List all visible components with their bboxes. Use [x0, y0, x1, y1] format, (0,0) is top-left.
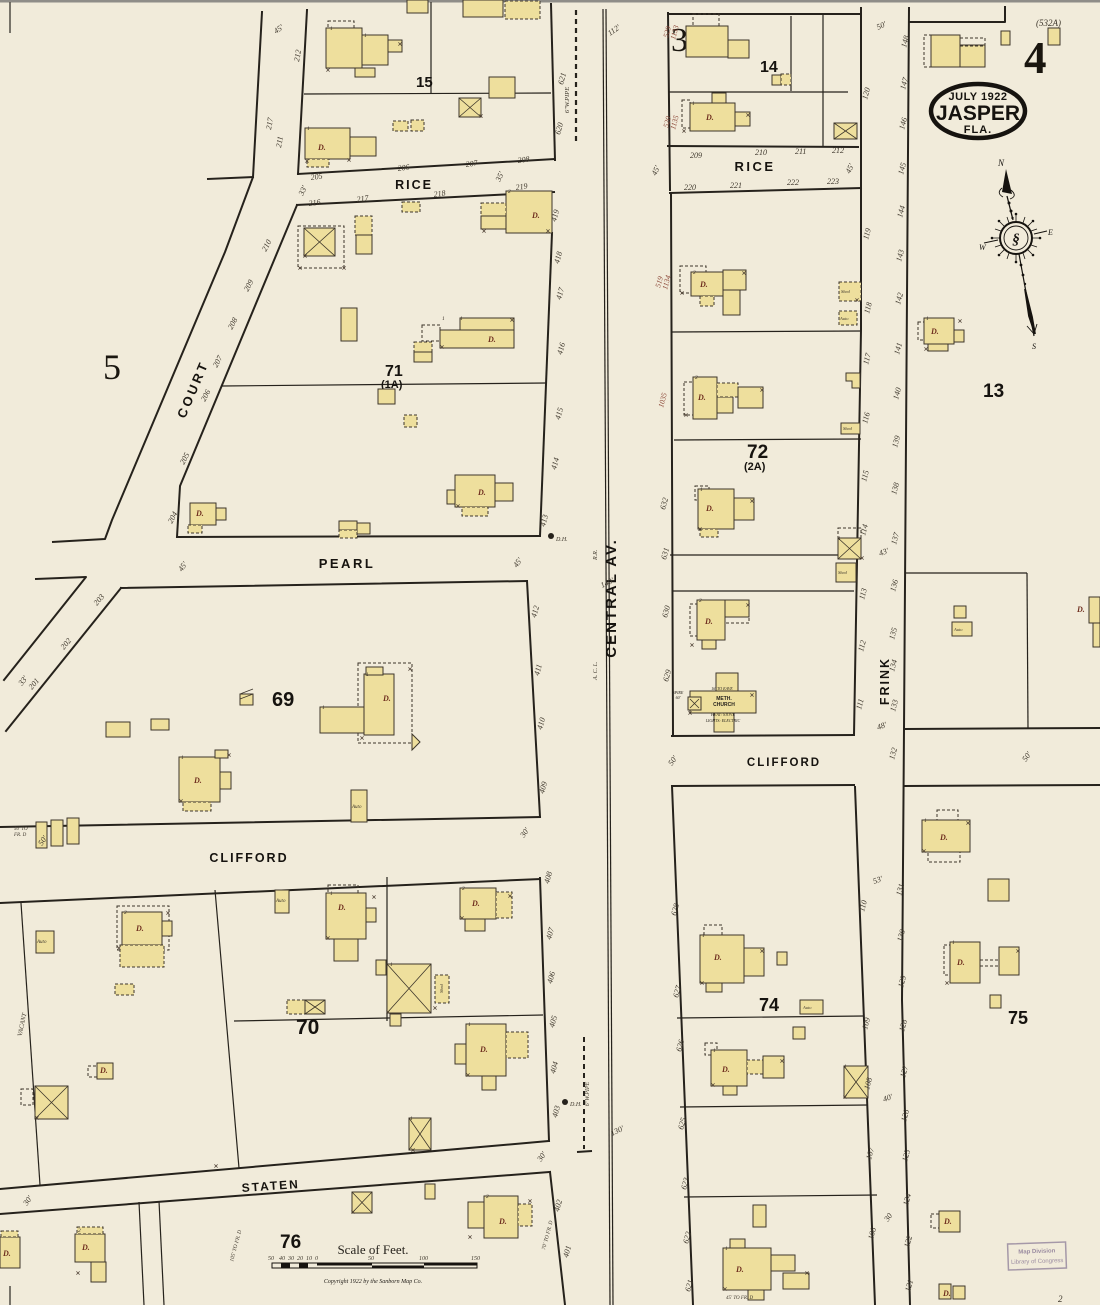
svg-text:1: 1 [410, 1116, 413, 1122]
svg-text:221: 221 [730, 181, 742, 190]
svg-text:75: 75 [1008, 1008, 1028, 1028]
svg-text:1: 1 [322, 705, 325, 711]
svg-text:1: 1 [702, 933, 705, 939]
svg-text:Shed: Shed [843, 426, 852, 431]
svg-text:220: 220 [684, 183, 696, 192]
svg-text:40: 40 [279, 1255, 285, 1262]
svg-text:16' TO EAVE: 16' TO EAVE [711, 686, 733, 691]
svg-text:15: 15 [416, 74, 433, 91]
svg-text:D.: D. [81, 1243, 90, 1252]
svg-text:1: 1 [952, 940, 955, 946]
svg-text:70: 70 [296, 1016, 319, 1039]
svg-text:150: 150 [471, 1256, 480, 1262]
svg-text:10: 10 [306, 1256, 312, 1262]
svg-text:222: 222 [787, 178, 799, 187]
svg-text:218: 218 [433, 188, 446, 199]
svg-text:1: 1 [366, 672, 369, 678]
svg-text:5: 5 [103, 347, 121, 387]
svg-text:D.: D. [943, 1217, 952, 1226]
svg-text:D.H.: D.H. [555, 537, 568, 543]
svg-text:Auto: Auto [351, 805, 362, 810]
svg-text:72: 72 [747, 442, 768, 463]
svg-text:4: 4 [1024, 33, 1047, 83]
svg-text:HEAT: STOVE: HEAT: STOVE [710, 712, 735, 717]
svg-text:50: 50 [368, 1256, 374, 1262]
svg-text:D.: D. [1076, 605, 1085, 614]
svg-text:CLIFFORD: CLIFFORD [747, 757, 821, 769]
svg-text:Auto: Auto [275, 899, 286, 904]
svg-text:S: S [1032, 342, 1036, 351]
svg-text:30: 30 [287, 1256, 294, 1262]
svg-text:207: 207 [465, 158, 479, 169]
svg-text:1: 1 [924, 818, 927, 824]
svg-text:212: 212 [832, 146, 844, 155]
svg-text:D.: D. [479, 1045, 488, 1054]
svg-text:D.: D. [498, 1217, 507, 1226]
svg-text:D.: D. [99, 1066, 108, 1075]
svg-text:FLA.: FLA. [964, 124, 992, 136]
svg-text:D.: D. [477, 488, 486, 497]
svg-text:223: 223 [827, 177, 839, 186]
svg-text:219: 219 [515, 181, 528, 192]
svg-text:1: 1 [442, 316, 445, 322]
svg-text:50: 50 [268, 1256, 274, 1262]
svg-text:208: 208 [517, 154, 530, 165]
svg-text:209: 209 [690, 151, 702, 160]
svg-text:2: 2 [462, 886, 465, 892]
svg-text:2: 2 [699, 598, 702, 604]
svg-text:CENTRAL AV.: CENTRAL AV. [603, 538, 620, 658]
svg-text:CLIFFORD: CLIFFORD [209, 851, 288, 865]
svg-text:2: 2 [78, 1228, 81, 1234]
svg-text:Auto: Auto [953, 627, 963, 632]
svg-text:1: 1 [330, 891, 333, 897]
svg-text:20: 20 [297, 1256, 303, 1262]
svg-text:JASPER: JASPER [936, 102, 1020, 125]
svg-text:D.: D. [699, 280, 708, 289]
svg-text:E: E [1047, 228, 1053, 237]
svg-text:RICE: RICE [734, 159, 775, 174]
svg-text:A. C. L.: A. C. L. [593, 661, 599, 681]
svg-text:D.: D. [195, 509, 204, 518]
svg-text:(532A): (532A) [1036, 18, 1061, 28]
svg-text:D.: D. [713, 953, 722, 962]
svg-text:Auto: Auto [36, 940, 47, 945]
svg-text:D.: D. [2, 1249, 11, 1258]
svg-text:14: 14 [760, 59, 778, 76]
svg-text:Auto: Auto [802, 1005, 812, 1010]
svg-text:0: 0 [315, 1256, 318, 1262]
svg-text:Copyright 1922 by the Sanborn: Copyright 1922 by the Sanborn Map Co. [324, 1279, 422, 1285]
svg-text:69: 69 [272, 689, 294, 711]
svg-text:2: 2 [695, 375, 698, 381]
svg-text:205: 205 [310, 171, 323, 182]
svg-text:1: 1 [844, 1064, 847, 1070]
svg-text:1: 1 [181, 755, 184, 761]
svg-text:D.: D. [721, 1065, 730, 1074]
svg-text:2: 2 [508, 189, 511, 195]
svg-text:D.: D. [705, 113, 714, 122]
svg-text:N: N [997, 158, 1005, 168]
svg-text:13: 13 [983, 381, 1004, 402]
svg-text:2: 2 [1058, 1294, 1063, 1304]
svg-text:45' TO FR. D: 45' TO FR. D [726, 1296, 753, 1301]
svg-text:1: 1 [713, 1048, 716, 1054]
svg-text:FR. D: FR. D [13, 833, 27, 838]
svg-text:76: 76 [280, 1232, 301, 1253]
svg-text:100: 100 [419, 1256, 428, 1262]
svg-text:1: 1 [364, 33, 367, 39]
svg-text:74: 74 [759, 995, 779, 1015]
svg-text:2: 2 [124, 910, 127, 916]
svg-text:D.: D. [135, 924, 144, 933]
svg-text:RICE: RICE [395, 178, 433, 192]
svg-text:1: 1 [838, 536, 841, 542]
svg-text:1: 1 [390, 962, 393, 968]
svg-text:D.: D. [735, 1265, 744, 1274]
svg-text:PEARL: PEARL [319, 556, 376, 571]
svg-text:50' TO: 50' TO [14, 827, 28, 832]
svg-text:60': 60' [676, 695, 681, 700]
svg-text:D.: D. [956, 958, 965, 967]
svg-text:217: 217 [356, 193, 370, 204]
svg-text:2: 2 [693, 270, 696, 276]
svg-text:1: 1 [926, 316, 929, 322]
svg-text:71: 71 [385, 363, 403, 380]
svg-text:CHURCH: CHURCH [713, 702, 735, 708]
svg-text:D.: D. [193, 776, 202, 785]
svg-text:210: 210 [755, 148, 767, 157]
svg-text:D.: D. [942, 1289, 951, 1298]
svg-text:1: 1 [700, 487, 703, 493]
svg-text:1: 1 [725, 1246, 728, 1252]
svg-text:2: 2 [486, 1194, 489, 1200]
svg-text:LIGHTS: ELECTRIC: LIGHTS: ELECTRIC [705, 718, 741, 723]
svg-text:6"W.PIPE: 6"W.PIPE [564, 87, 571, 114]
svg-text:(2A): (2A) [744, 461, 766, 473]
svg-text:Scale of Feet.: Scale of Feet. [337, 1242, 408, 1257]
svg-text:D.: D. [930, 327, 939, 336]
svg-text:1: 1 [307, 126, 310, 132]
svg-text:D.: D. [704, 617, 713, 626]
svg-text:216: 216 [308, 197, 321, 208]
svg-text:§: § [1012, 232, 1020, 248]
svg-text:D.: D. [382, 694, 391, 703]
svg-text:1: 1 [468, 1022, 471, 1028]
svg-text:Auto: Auto [839, 316, 849, 321]
svg-text:D.: D. [337, 903, 346, 912]
svg-text:Shed: Shed [841, 289, 850, 294]
svg-text:206: 206 [397, 162, 410, 173]
svg-text:D.: D. [697, 393, 706, 402]
svg-text:D.H.: D.H. [569, 1102, 582, 1108]
svg-text:Shed: Shed [439, 984, 444, 993]
svg-text:D.: D. [531, 211, 540, 220]
svg-text:D.: D. [705, 504, 714, 513]
svg-text:1: 1 [460, 316, 463, 322]
svg-text:Shed: Shed [838, 570, 847, 575]
svg-text:R.R.: R.R. [593, 550, 599, 561]
svg-text:D.: D. [471, 899, 480, 908]
svg-text:1: 1 [692, 101, 695, 107]
svg-text:1: 1 [330, 26, 333, 32]
svg-text:D.: D. [487, 335, 496, 344]
svg-text:6"W.PIPE: 6"W.PIPE [585, 1081, 591, 1106]
svg-text:D.: D. [939, 833, 948, 842]
svg-text:D.: D. [317, 143, 326, 152]
svg-text:211: 211 [795, 147, 806, 156]
